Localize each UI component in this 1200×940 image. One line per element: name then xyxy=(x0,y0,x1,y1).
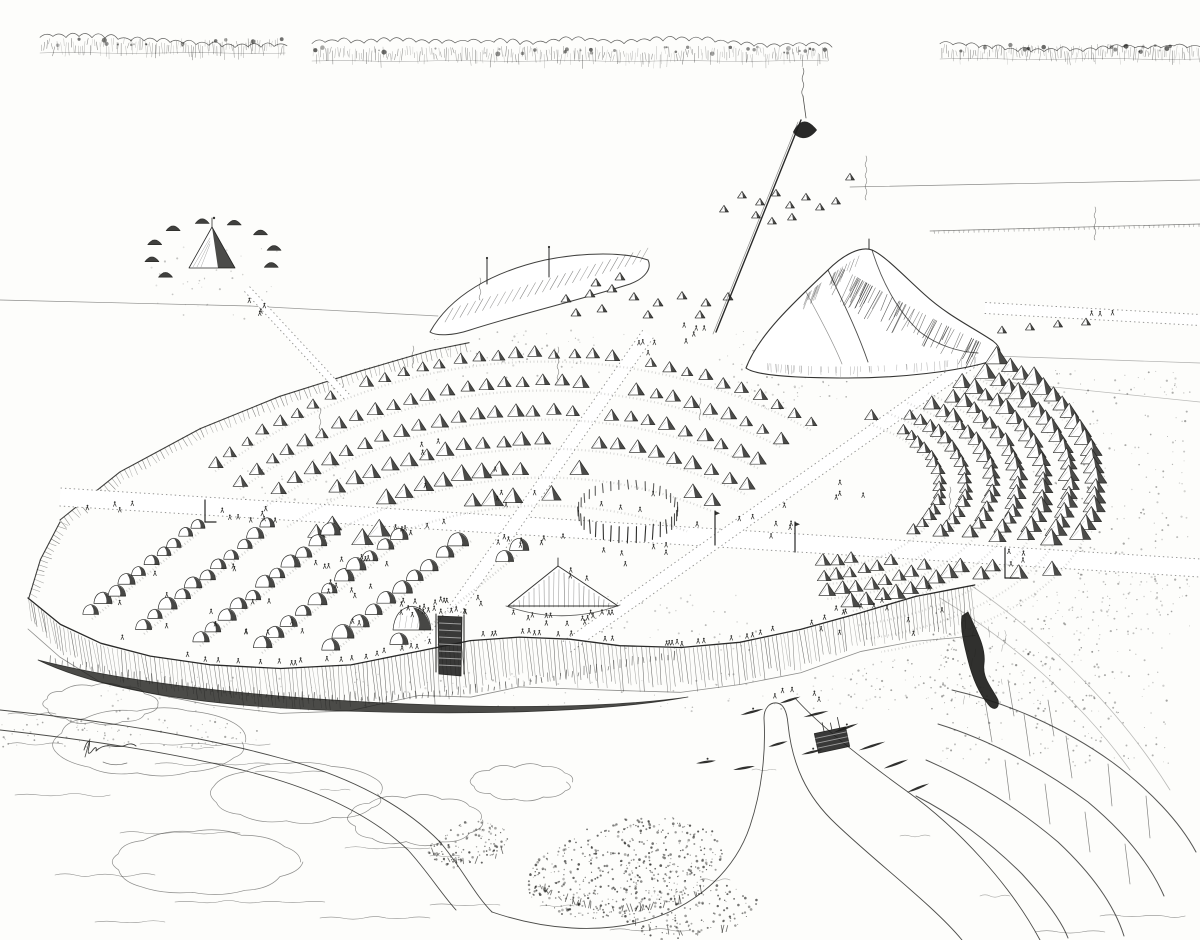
settlement-reconstruction-drawing xyxy=(0,0,1200,940)
gate-stairway xyxy=(436,614,464,676)
reconstruction-drawing-page xyxy=(0,0,1200,940)
